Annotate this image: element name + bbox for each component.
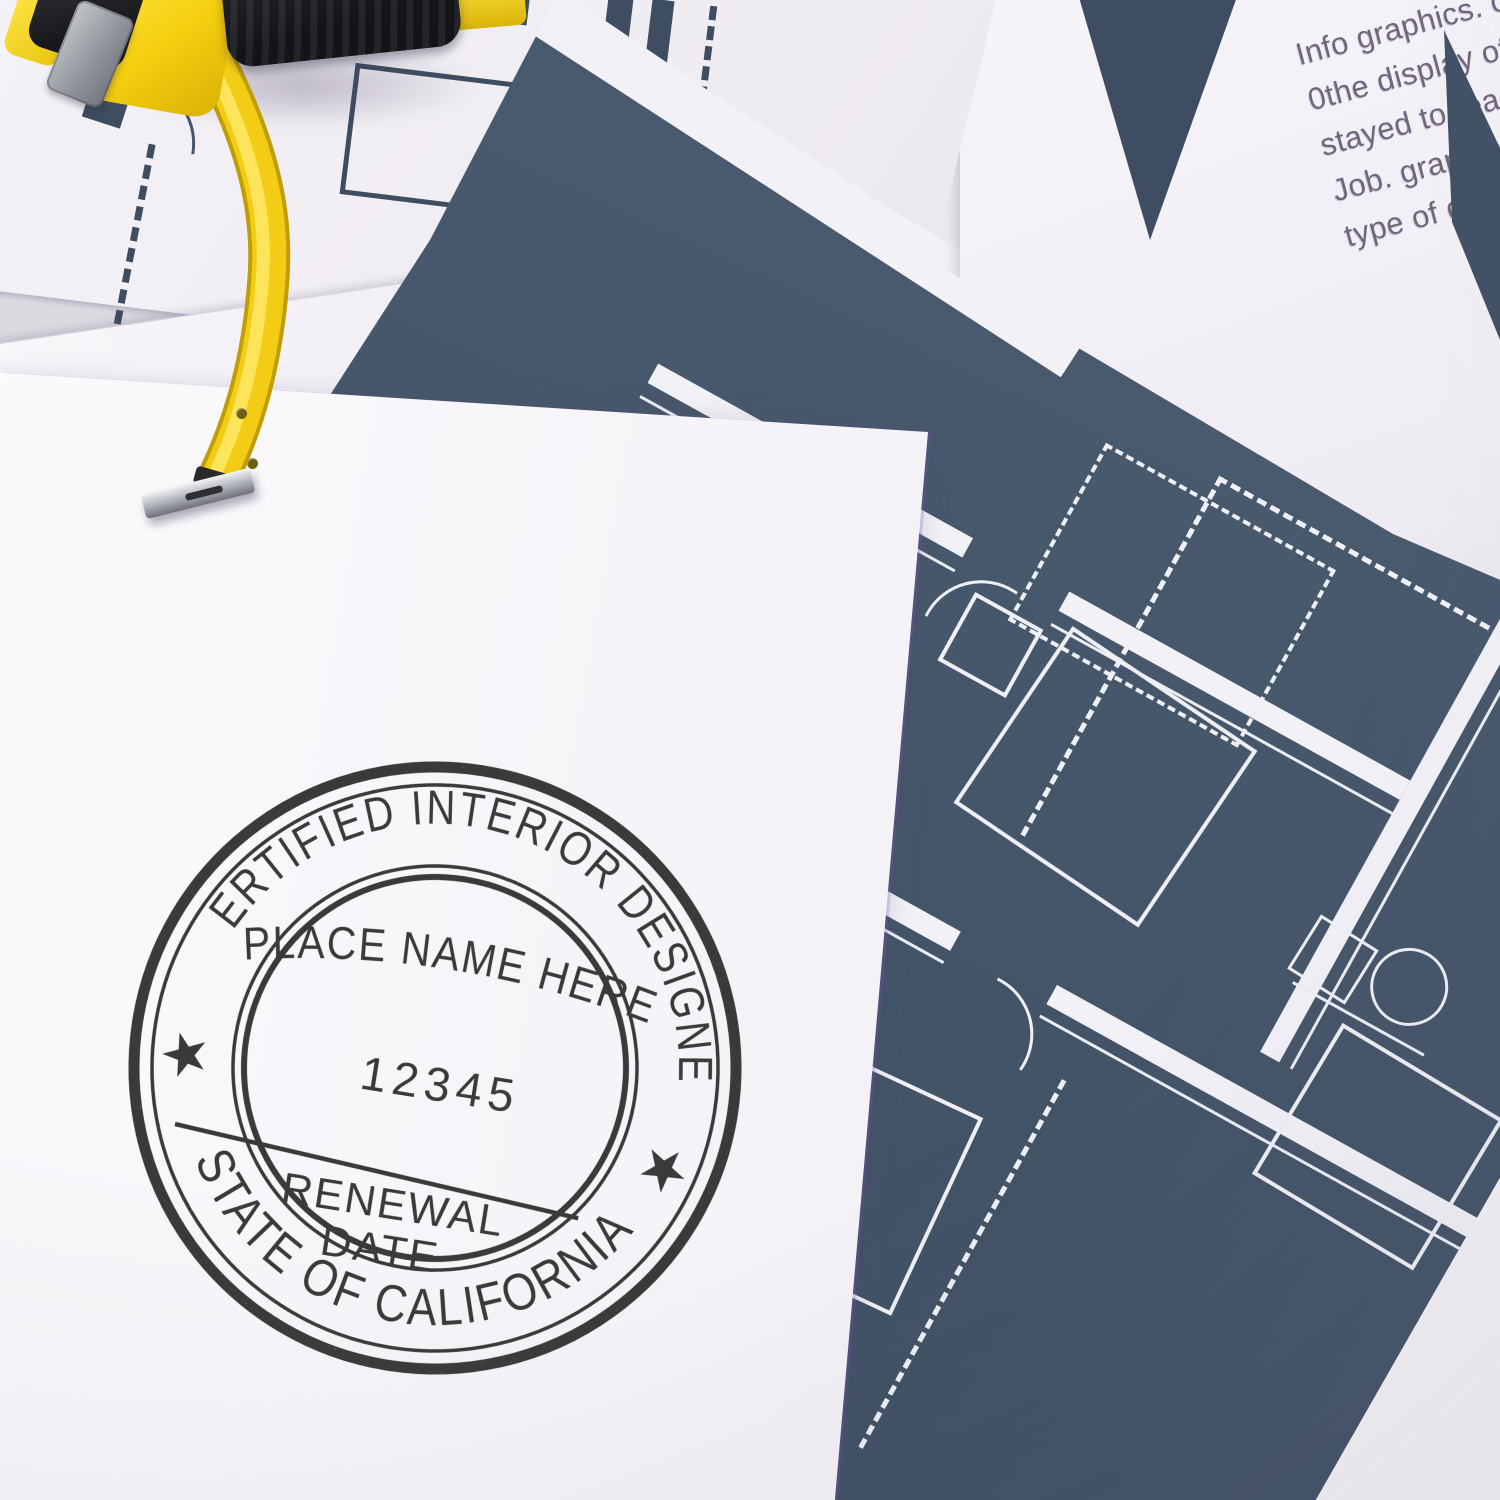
star-icon: ★ — [623, 1133, 706, 1208]
stamp-license-number: 12345 — [357, 1046, 524, 1123]
svg-text:PLACE NAME HERE: PLACE NAME HERE — [234, 895, 669, 1035]
star-icon: ★ — [149, 1027, 220, 1082]
tape-rivet — [236, 408, 247, 419]
stamp-name-placeholder: PLACE NAME HERE — [234, 895, 669, 1035]
photo-canvas: type of OPTIONS Info graphics. or Infor … — [0, 0, 1500, 1500]
tape-rivet — [247, 458, 258, 469]
tape-hook-slot — [184, 485, 223, 501]
certification-stamp: CERTIFIED INTERIOR DESIGNER STATE OF CAL… — [105, 738, 765, 1398]
